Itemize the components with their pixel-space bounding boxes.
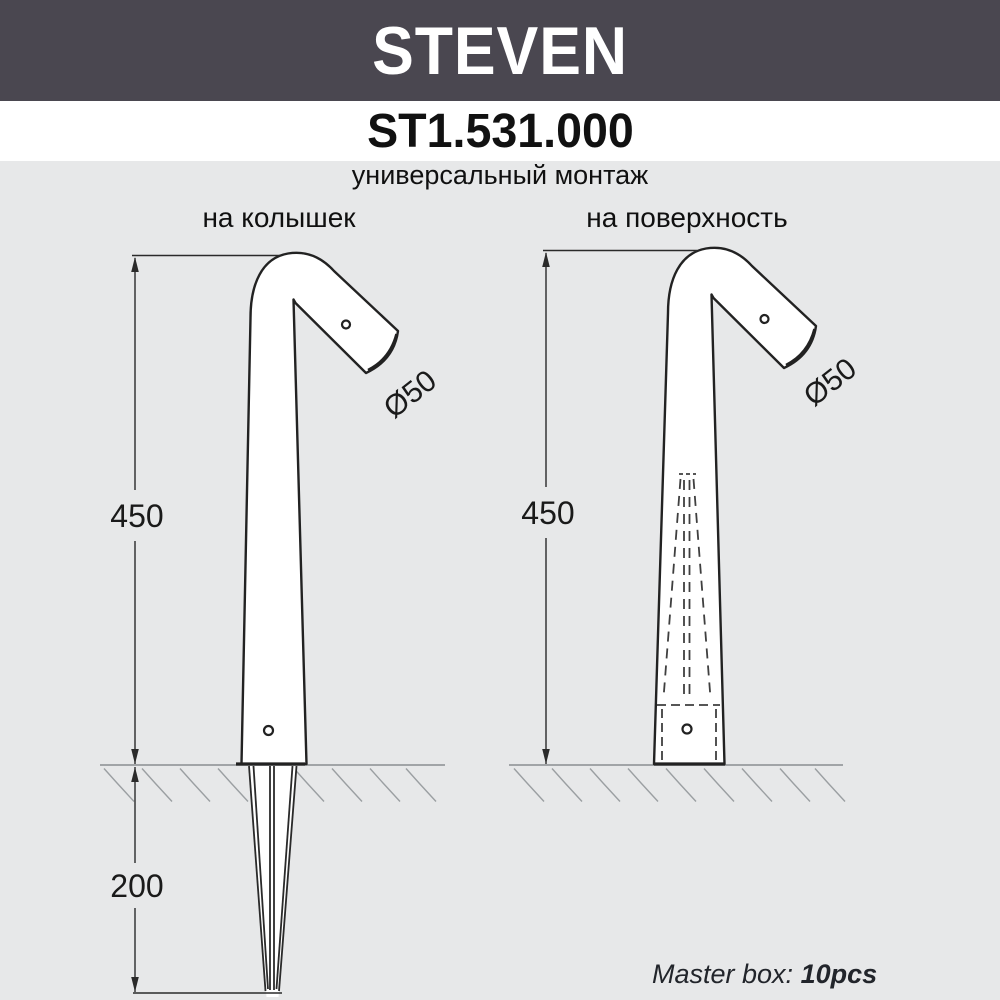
- screw-detail-head-right: [761, 315, 769, 323]
- screw-detail-head-left: [342, 321, 350, 329]
- pole-outline-left: [242, 253, 399, 764]
- screw-detail-base-right: [683, 725, 692, 734]
- right-drawing-surface-mount: 450 Ø50: [509, 248, 863, 802]
- screw-detail-base-left: [264, 726, 273, 735]
- spec-sheet: STEVEN ST1.531.000 универсальный монтаж …: [0, 0, 1000, 1000]
- diameter-label-left: Ø50: [378, 364, 443, 425]
- master-box-note: Master box: 10pcs: [652, 959, 982, 990]
- technical-drawing: 450 200 Ø50: [0, 0, 1000, 1000]
- diameter-label-right: Ø50: [798, 352, 863, 413]
- ground-hatching-right: [514, 769, 845, 802]
- height-dimension-label-left: 450: [110, 498, 163, 534]
- master-box-value: 10pcs: [801, 959, 878, 989]
- left-drawing-stake-mount: 450 200 Ø50: [100, 253, 445, 997]
- master-box-label: Master box:: [652, 959, 793, 989]
- height-dimension-label-right: 450: [521, 495, 574, 531]
- ground-spike: [248, 766, 297, 997]
- depth-dimension-label-left: 200: [110, 868, 163, 904]
